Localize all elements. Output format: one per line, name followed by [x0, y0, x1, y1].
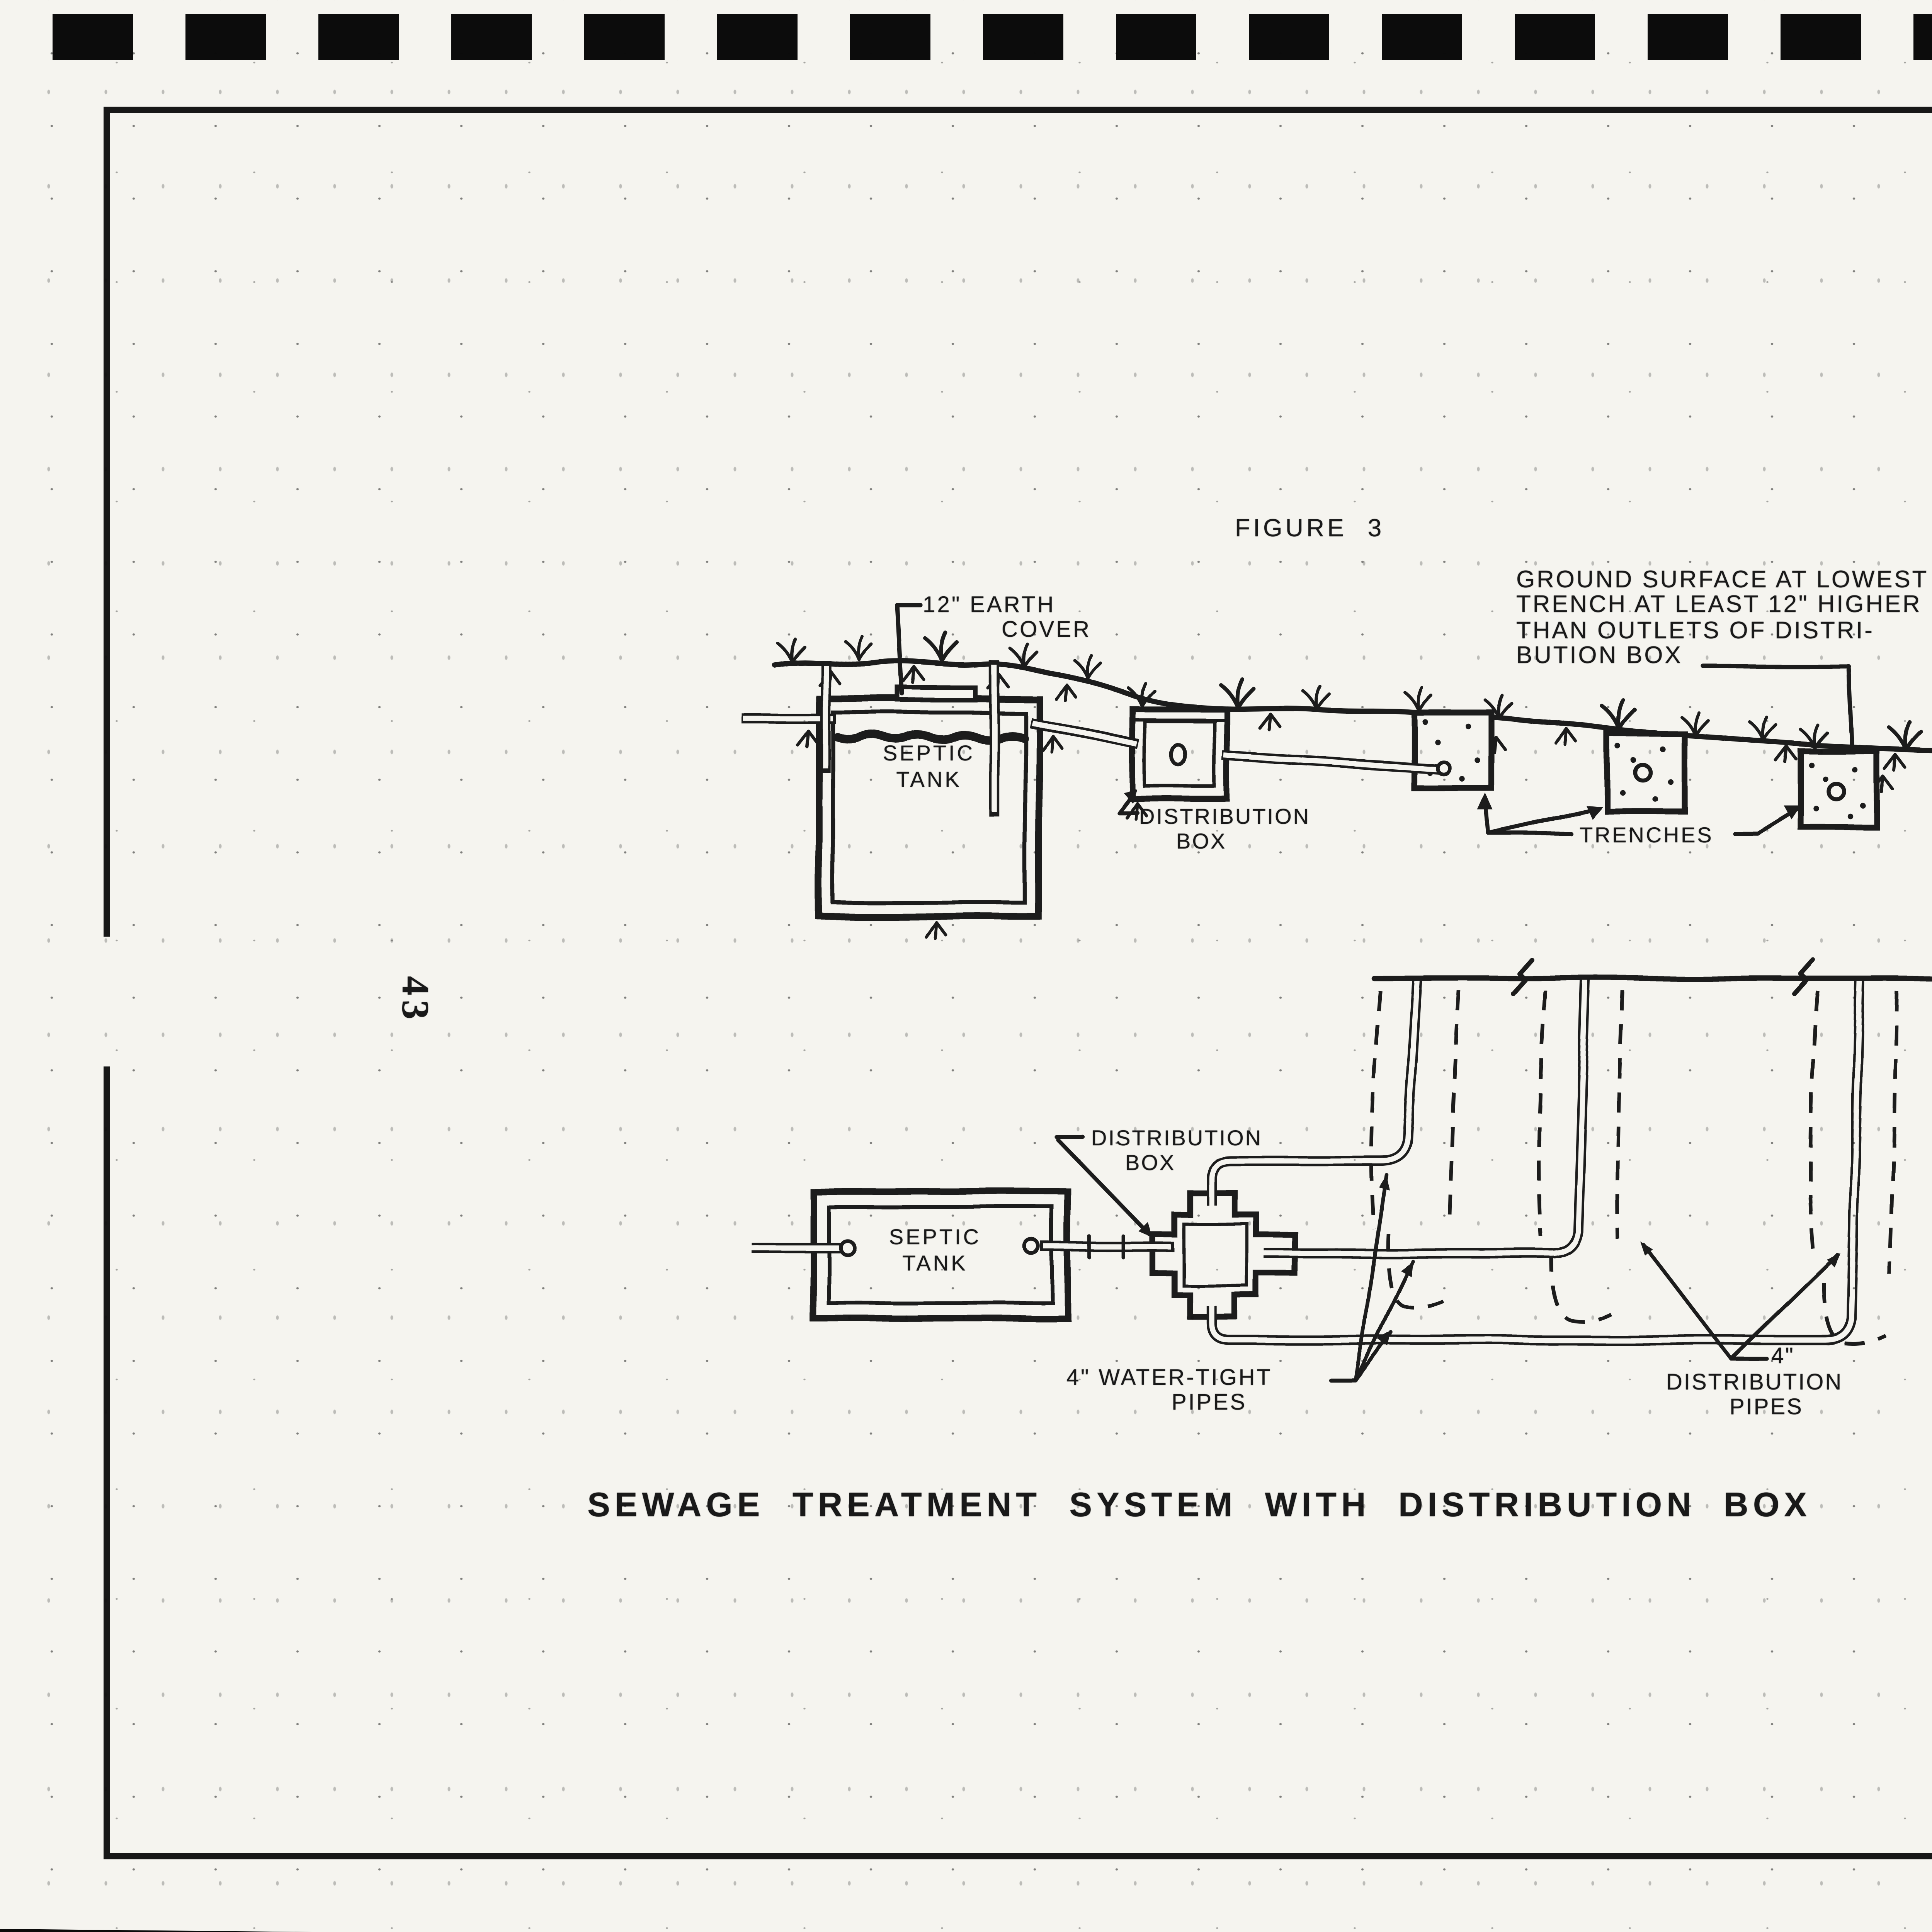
ground-note-line2: TRENCH AT LEAST 12" HIGHER [1516, 594, 1929, 620]
scanned-page: FIGURE 3 GROUND SURFACE AT LOWEST TRENCH… [0, 0, 1932, 1932]
ground-note-line1: GROUND SURFACE AT LOWEST [1516, 569, 1929, 594]
trenches-label: TRENCHES [1580, 822, 1713, 847]
watertight-pipes-label-line1: 4" WATER-TIGHT [1066, 1366, 1272, 1391]
septic-tank-label-section: SEPTIC TANK [828, 740, 1029, 791]
ground-note-line4: BUTION BOX [1516, 645, 1929, 670]
septic-tank-label-line1: SEPTIC [828, 740, 1029, 766]
scan-edge-artifact [0, 1929, 1870, 1932]
distribution-box-section [1133, 709, 1227, 799]
trench-outlines-dashed [1371, 991, 1896, 1344]
distribution-pipes-label-line2: DISTRIBUTION [1666, 1371, 1843, 1396]
septic-tank-plan-label-line2: TANK [835, 1250, 1036, 1275]
trenches-leader-left [1485, 798, 1570, 833]
ground-note-leader [1703, 666, 1852, 743]
earth-cover-label-line1: 12" EARTH [923, 594, 1056, 618]
diagram-title: SEWAGE TREATMENT SYSTEM WITH DISTRIBUTIO… [581, 1485, 1818, 1526]
page-number: 43 [392, 976, 435, 1024]
field-boundary [1374, 960, 1932, 994]
scan-white-notch [90, 937, 121, 1066]
distribution-box-label-section-line2: BOX [1176, 828, 1226, 853]
watertight-leaders [1355, 1175, 1413, 1380]
bottom-diagram-plan-view [751, 960, 1932, 1380]
distribution-pipes-label-line3: PIPES [1730, 1396, 1803, 1420]
distribution-box-label-plan-line2: BOX [1125, 1150, 1175, 1175]
tank-manhole-cover [898, 688, 975, 700]
diagram-canvas [0, 0, 1932, 1932]
figure-label: FIGURE 3 [1235, 516, 1384, 544]
distribution-box-label-section-line1: DISTRIBUTION [1139, 804, 1310, 828]
ground-surface-note: GROUND SURFACE AT LOWEST TRENCH AT LEAST… [1516, 569, 1929, 670]
earth-cover-leader [898, 606, 921, 694]
trench-2 [1607, 734, 1685, 811]
pipe-end-in-trench [1437, 762, 1450, 774]
distribution-pipe-top [1212, 978, 1417, 1206]
earth-cover-label-line2: COVER [1002, 618, 1091, 643]
septic-tank-label-plan: SEPTIC TANK [835, 1224, 1036, 1275]
distribution-pipe-middle [1264, 978, 1586, 1253]
watertight-pipes-label-line2: PIPES [1172, 1391, 1247, 1416]
ground-note-line3: THAN OUTLETS OF DISTRI- [1516, 619, 1929, 645]
trench-1 [1414, 713, 1492, 788]
distribution-pipes-label-size: 4" [1771, 1345, 1795, 1369]
septic-tank-label-line2: TANK [828, 766, 1029, 791]
distribution-box-label-plan-line1: DISTRIBUTION [1091, 1125, 1262, 1150]
septic-tank-section [819, 688, 1039, 938]
trench-3 [1801, 751, 1876, 827]
septic-tank-plan-label-line1: SEPTIC [835, 1224, 1036, 1250]
